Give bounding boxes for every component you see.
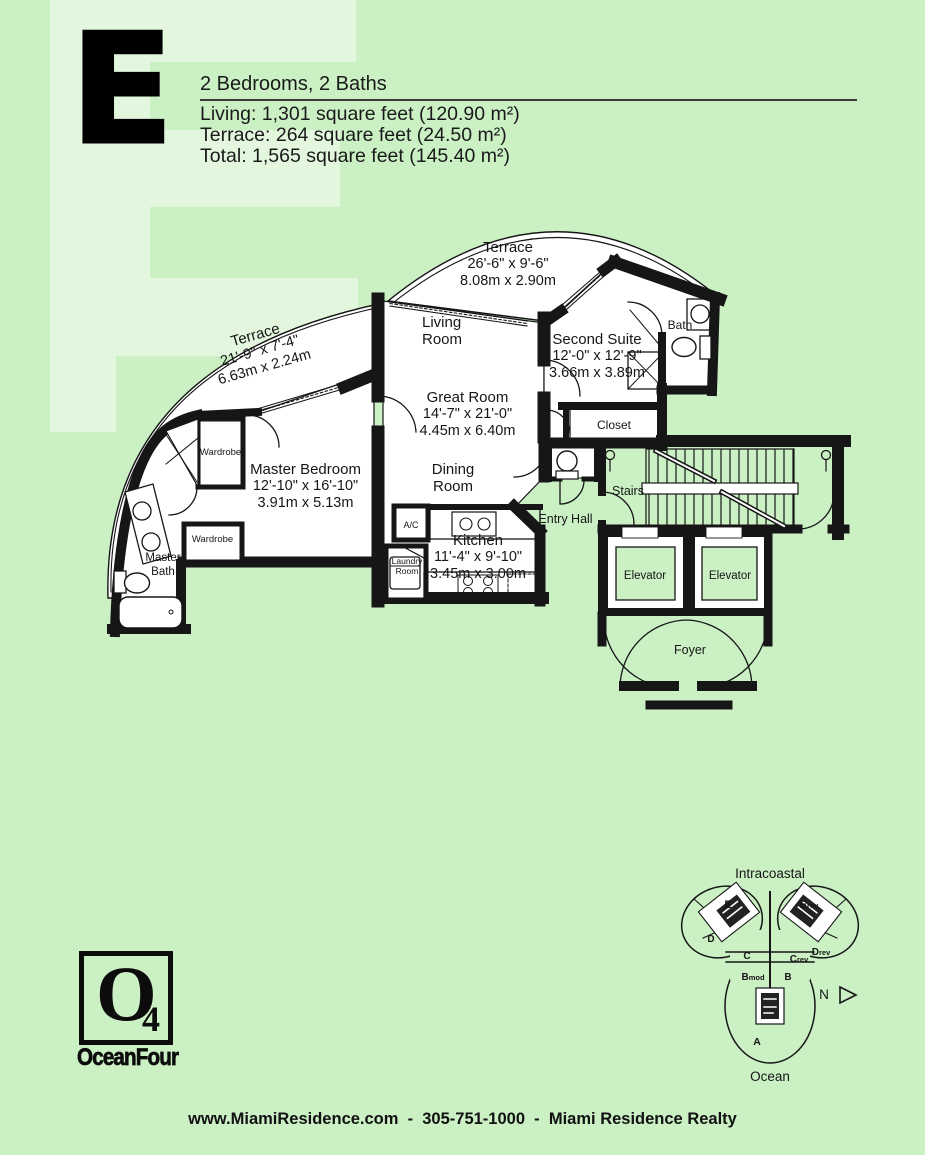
header-divider xyxy=(200,99,857,101)
label-entry-hall: Entry Hall xyxy=(528,511,603,528)
label-closet: Closet xyxy=(583,417,645,434)
label-living-room: Living Room xyxy=(422,314,482,348)
stat-living: Living: 1,301 square feet (120.90 m²) xyxy=(200,104,520,125)
label-unit-c-rev: Crev xyxy=(782,954,816,965)
label-second-suite: Second Suite 12'-0" x 12'-9" 3.66m x 3.8… xyxy=(512,331,682,382)
label-north: N xyxy=(814,987,834,1002)
stat-terrace: Terrace: 264 square feet (24.50 m²) xyxy=(200,125,520,146)
logo-wordmark: OceanFour xyxy=(77,1044,178,1072)
label-wardrobe-2: Wardrobe xyxy=(189,531,236,548)
label-unit-b: B xyxy=(781,972,795,983)
label-unit-e: E xyxy=(721,899,735,911)
label-terrace-top: Terrace 26'-6" x 9'-6" 8.08m x 2.90m xyxy=(413,239,603,290)
unit-letter: E xyxy=(70,14,172,166)
footer-contact-line: www.MiamiResidence.com - 305-751-1000 - … xyxy=(0,1110,925,1129)
label-foyer: Foyer xyxy=(660,642,720,659)
label-bath: Bath xyxy=(658,317,702,334)
label-unit-d: D xyxy=(704,934,718,945)
label-unit-e-rev: Erev xyxy=(792,899,826,911)
label-laundry: Laundry Room xyxy=(388,556,426,576)
label-elevator-2: Elevator xyxy=(700,568,760,585)
logo-subscript-4: 4 xyxy=(142,998,160,1040)
label-elevator-1: Elevator xyxy=(615,568,675,585)
area-stats: Living: 1,301 square feet (120.90 m²) Te… xyxy=(200,104,520,167)
label-unit-b-mod: Bmod xyxy=(734,972,772,983)
label-terrace-left: Terrace 21'-9" x 7'-4" 6.63m x 2.24m xyxy=(162,301,359,402)
flyer-page: E 2 Bedrooms, 2 Baths Living: 1,301 squa… xyxy=(0,0,925,1155)
label-ocean: Ocean xyxy=(735,1069,805,1084)
unit-subtitle: 2 Bedrooms, 2 Baths xyxy=(200,73,387,96)
label-great-room: Great Room 14'-7" x 21'-0" 4.45m x 6.40m xyxy=(385,389,550,440)
label-intracoastal: Intracoastal xyxy=(705,866,835,881)
label-layer: E 2 Bedrooms, 2 Baths Living: 1,301 squa… xyxy=(0,0,925,1155)
label-unit-a: A xyxy=(750,1036,764,1048)
label-unit-c: C xyxy=(740,951,754,962)
stat-total: Total: 1,565 square feet (145.40 m²) xyxy=(200,146,520,167)
label-master-bath: Master Bath xyxy=(138,551,188,579)
ocean-four-logo: O 4 xyxy=(79,951,173,1045)
label-wardrobe-1: Wardrobe xyxy=(197,444,244,461)
label-stairs: Stairs xyxy=(604,483,652,500)
label-dining-room: Dining Room xyxy=(423,461,483,495)
label-master-bedroom: Master Bedroom 12'-10" x 16'-10" 3.91m x… xyxy=(208,461,403,512)
